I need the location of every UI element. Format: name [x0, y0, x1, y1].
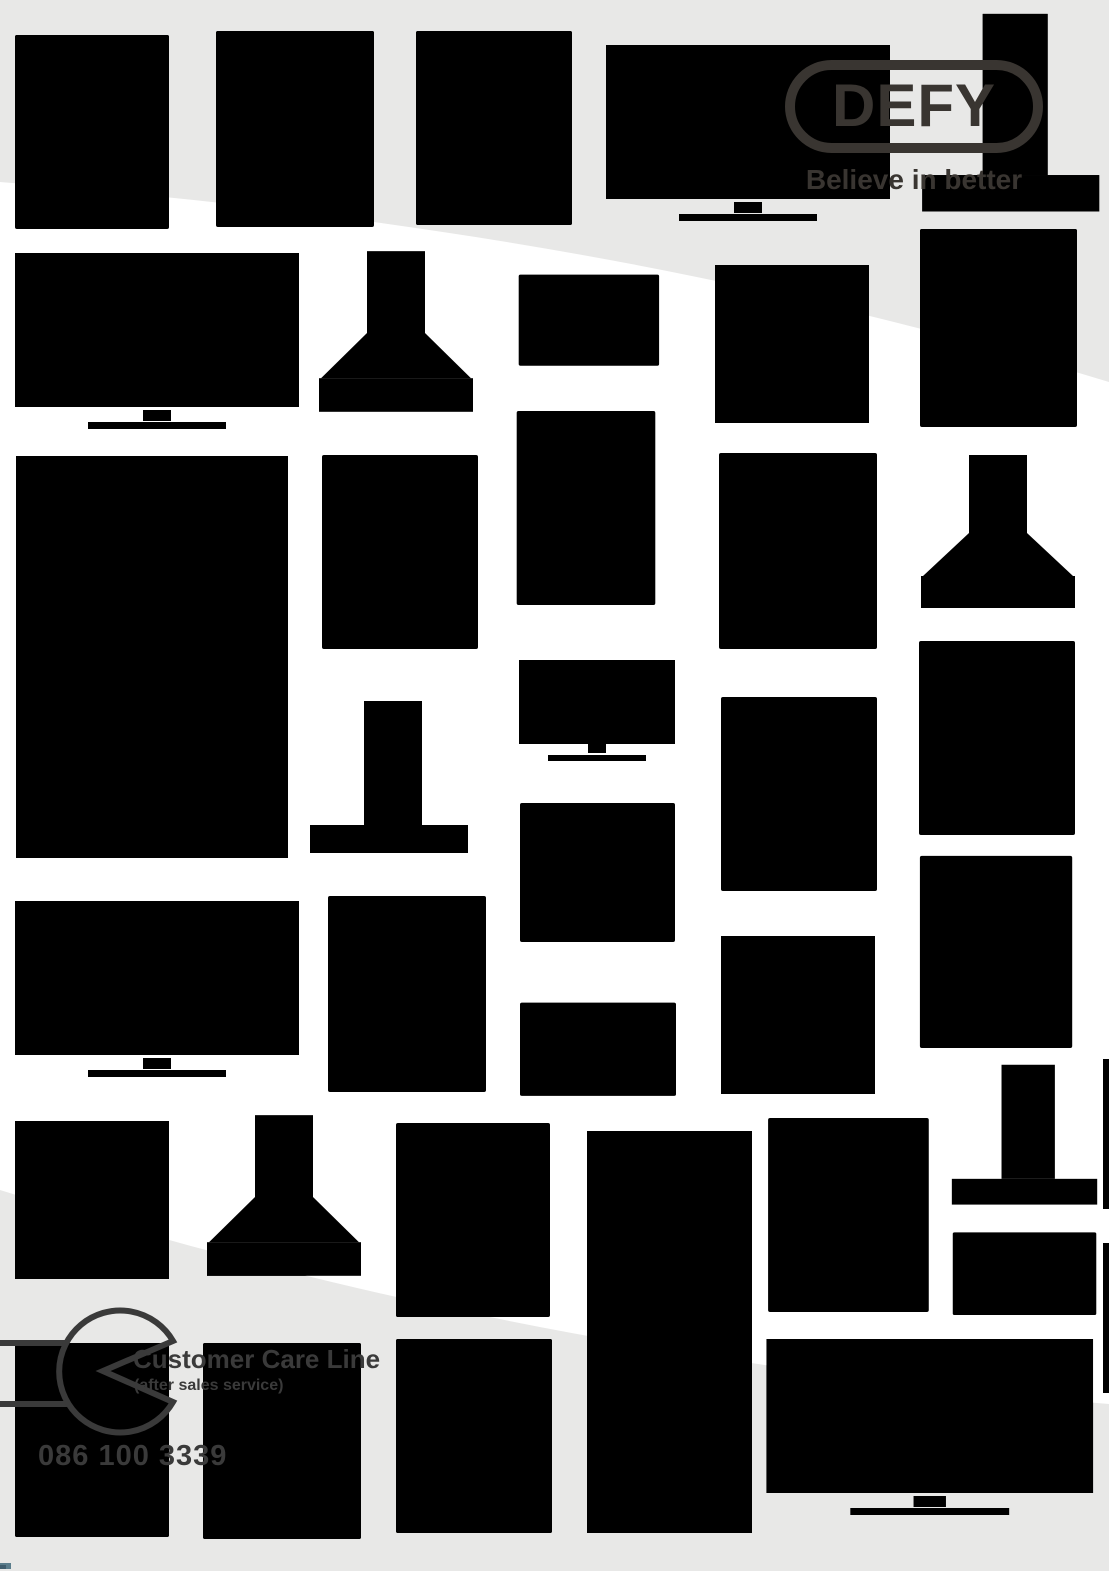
defy-logo: DEFY: [785, 60, 1043, 153]
defy-logo-text: DEFY: [832, 76, 996, 136]
appliance-pattern-background: [0, 0, 1109, 1571]
manual-back-cover: DEFY Believe in better Customer Care Lin…: [0, 0, 1109, 1571]
page-corner-artifact: [0, 1563, 11, 1569]
customer-care-title: Customer Care Line: [133, 1344, 380, 1375]
customer-care-subtitle: (after sales service): [134, 1377, 283, 1395]
believe-in-better-tagline: Believe in better: [779, 164, 1049, 196]
customer-care-phone-number: 086 100 3339: [38, 1440, 227, 1473]
